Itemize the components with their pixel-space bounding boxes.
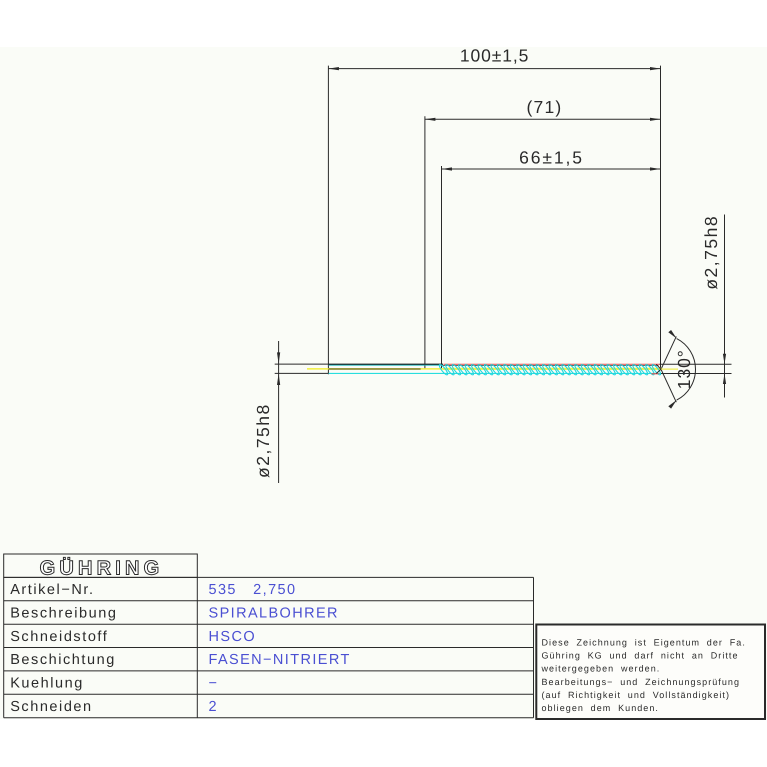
svg-text:130°: 130°	[674, 349, 694, 389]
svg-text:(71): (71)	[527, 97, 563, 117]
svg-text:SPIRALBOHRER: SPIRALBOHRER	[209, 605, 339, 621]
svg-text:Schneiden: Schneiden	[10, 699, 92, 715]
svg-text:Artikel−Nr.: Artikel−Nr.	[10, 582, 94, 598]
svg-text:2: 2	[209, 699, 218, 715]
svg-text:weitergegeben werden.: weitergegeben werden.	[541, 664, 661, 674]
svg-text:GÜHRING: GÜHRING	[40, 557, 164, 580]
svg-text:Schneidstoff: Schneidstoff	[10, 629, 108, 645]
svg-text:(auf Richtigkeit und Vollständ: (auf Richtigkeit und Vollständigkeit)	[542, 690, 731, 700]
svg-text:obliegen dem Kunden.: obliegen dem Kunden.	[542, 703, 659, 713]
svg-text:ø2,75h8: ø2,75h8	[253, 403, 273, 478]
svg-text:Gühring KG und darf nicht an D: Gühring KG und darf nicht an Dritte	[542, 651, 739, 661]
svg-text:−: −	[209, 676, 219, 692]
svg-text:Bearbeitungs− und Zeichnungspr: Bearbeitungs− und Zeichnungsprüfung	[542, 677, 741, 687]
svg-text:FASEN−NITRIERT: FASEN−NITRIERT	[209, 652, 351, 668]
svg-text:535 2,750: 535 2,750	[209, 582, 297, 598]
svg-text:Kuehlung: Kuehlung	[10, 676, 84, 692]
svg-text:Beschichtung: Beschichtung	[10, 652, 116, 668]
svg-text:Beschreibung: Beschreibung	[10, 605, 117, 621]
svg-text:66±1,5: 66±1,5	[519, 147, 584, 167]
svg-text:100±1,5: 100±1,5	[460, 45, 529, 65]
svg-text:HSCO: HSCO	[209, 629, 257, 645]
svg-text:Diese Zeichnung ist Eigentum d: Diese Zeichnung ist Eigentum der Fa.	[542, 638, 746, 648]
svg-text:ø2,75h8: ø2,75h8	[701, 215, 721, 290]
